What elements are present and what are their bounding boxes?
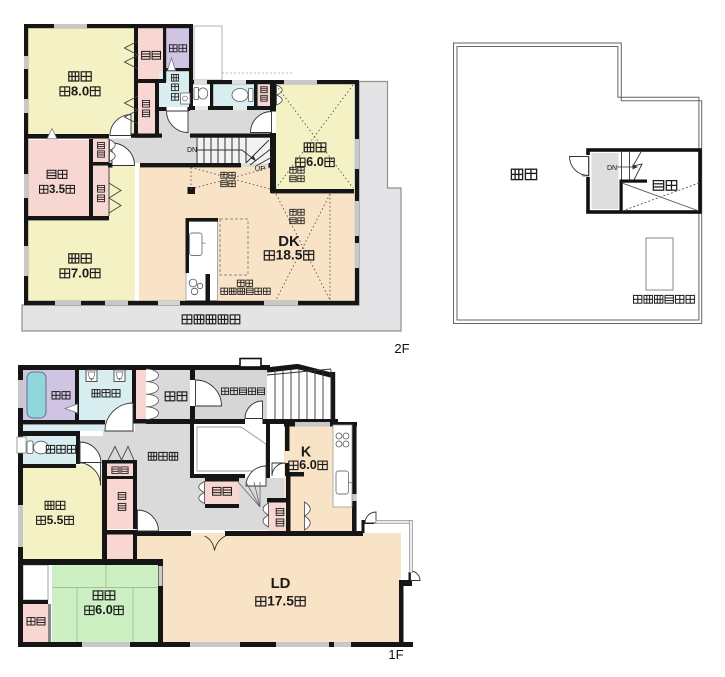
svg-text:DN: DN	[607, 165, 617, 172]
svg-text:8.0: 8.0	[71, 83, 89, 98]
svg-text:2F: 2F	[394, 341, 409, 356]
svg-text:6.0: 6.0	[95, 603, 113, 617]
svg-text:3.5: 3.5	[49, 183, 66, 196]
svg-text:7.0: 7.0	[71, 265, 89, 280]
svg-text:UP: UP	[255, 164, 265, 173]
svg-text:DN: DN	[187, 147, 197, 154]
svg-text:17.5: 17.5	[267, 594, 294, 609]
svg-text:1F: 1F	[388, 647, 403, 662]
svg-text:18.5: 18.5	[276, 248, 303, 263]
svg-text:5.5: 5.5	[47, 513, 64, 527]
svg-text:6.0: 6.0	[299, 458, 317, 472]
svg-text:LD: LD	[271, 576, 291, 592]
svg-text:6.0: 6.0	[306, 155, 324, 169]
